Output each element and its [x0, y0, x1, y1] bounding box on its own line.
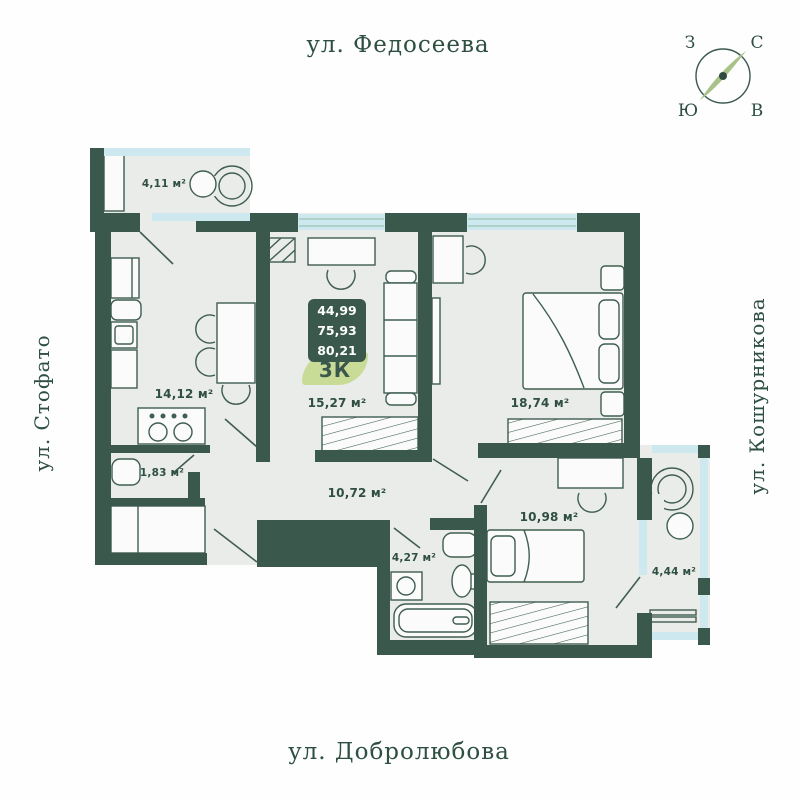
area-value-apartment: 75,93	[317, 321, 357, 341]
glazing-balcony-right-top	[652, 445, 698, 453]
balcony-table-icon	[667, 513, 693, 539]
hall-closet	[111, 506, 205, 553]
wall-closet-top	[95, 498, 205, 506]
sofa-armrest	[386, 393, 416, 405]
room-label-child-room: 10,98 м²	[520, 510, 579, 524]
desk-bedroom	[433, 236, 463, 283]
room-label-living: 15,27 м²	[308, 396, 367, 410]
room-label-storage: 1,83 м²	[140, 467, 184, 479]
washing-machine-icon	[391, 572, 422, 600]
stove-knob	[183, 414, 187, 418]
sofa-armrest	[386, 271, 416, 283]
wardrobe-living	[322, 417, 418, 451]
balcony-cabinet	[104, 155, 124, 211]
nightstand	[601, 266, 624, 290]
wall-storage	[188, 472, 200, 500]
wall-block-entry	[257, 520, 390, 567]
areas-card: 44,99 75,93 80,21	[308, 299, 366, 362]
wall-top	[385, 213, 467, 232]
wall-balcony-corner	[698, 445, 710, 458]
glazing-child-balcony	[639, 520, 647, 575]
stove-knob	[161, 414, 165, 418]
window-bedroom	[467, 214, 577, 230]
window-living	[298, 214, 385, 230]
pillow	[599, 344, 619, 383]
toilet-icon	[452, 565, 472, 597]
wall-child-bottom	[474, 645, 652, 658]
pillow	[491, 536, 515, 576]
balcony-table-icon	[190, 171, 216, 197]
stove-icon	[138, 408, 205, 444]
wall-bedroom-bottom	[478, 443, 624, 458]
bathtub-faucet	[453, 617, 469, 624]
wardrobe-child	[490, 602, 588, 644]
chair-gap	[650, 494, 664, 510]
tv-bedroom-icon	[432, 298, 440, 384]
kitchen-counter	[111, 300, 141, 320]
floor-plan	[0, 0, 800, 800]
wall-child-right	[637, 613, 652, 658]
desk-child	[558, 458, 623, 488]
wall-balcony-block	[698, 578, 710, 595]
area-value-living: 44,99	[317, 301, 357, 321]
storage-shelf	[112, 459, 140, 485]
wall-bathroom-top	[430, 518, 477, 530]
sofa-icon	[384, 283, 417, 393]
nightstand	[601, 392, 624, 416]
glazing-balcony-top	[104, 148, 250, 156]
wall-child-right	[637, 458, 652, 520]
glazing-balcony-right	[700, 595, 708, 628]
stove-knob	[150, 414, 154, 418]
glazing-balcony-inner	[152, 213, 250, 221]
room-label-bedroom: 18,74 м²	[511, 396, 570, 410]
desk-living	[308, 238, 375, 265]
glazing-balcony-right-bottom	[652, 632, 698, 640]
pillow	[599, 300, 619, 339]
room-label-hallway: 10,72 м²	[328, 486, 387, 500]
wall	[90, 148, 104, 221]
room-label-balcony-top: 4,11 м²	[142, 178, 186, 190]
glazing-balcony-right	[700, 458, 708, 578]
wall-bathroom-left	[377, 520, 390, 655]
wall-balcony-corner	[698, 628, 710, 645]
room-label-bathroom: 4,27 м²	[392, 552, 436, 564]
washbasin-icon	[443, 533, 477, 557]
wall-right-bedroom	[624, 213, 640, 458]
wall-bottom-left	[95, 553, 207, 565]
wall-kitchen-living	[256, 232, 270, 462]
kitchen-counter-2	[111, 350, 137, 388]
fridge-icon	[111, 258, 139, 298]
wall-bath-child	[474, 505, 487, 655]
floor-plan-page: ул. Федосеева ул. Добролюбова ул. Стофат…	[0, 0, 800, 800]
wall-living-hall	[315, 450, 432, 462]
room-label-kitchen: 14,12 м²	[155, 387, 214, 401]
dining-table-icon	[217, 303, 255, 383]
wall-kitchen-bottom	[95, 445, 210, 453]
room-label-balcony-right: 4,44 м²	[652, 566, 696, 578]
stove-knob	[172, 414, 176, 418]
area-value-total: 80,21	[317, 341, 357, 361]
wall-left	[95, 221, 111, 565]
wall-bathroom-bottom	[377, 640, 487, 655]
wall-living-bedroom	[418, 232, 432, 458]
